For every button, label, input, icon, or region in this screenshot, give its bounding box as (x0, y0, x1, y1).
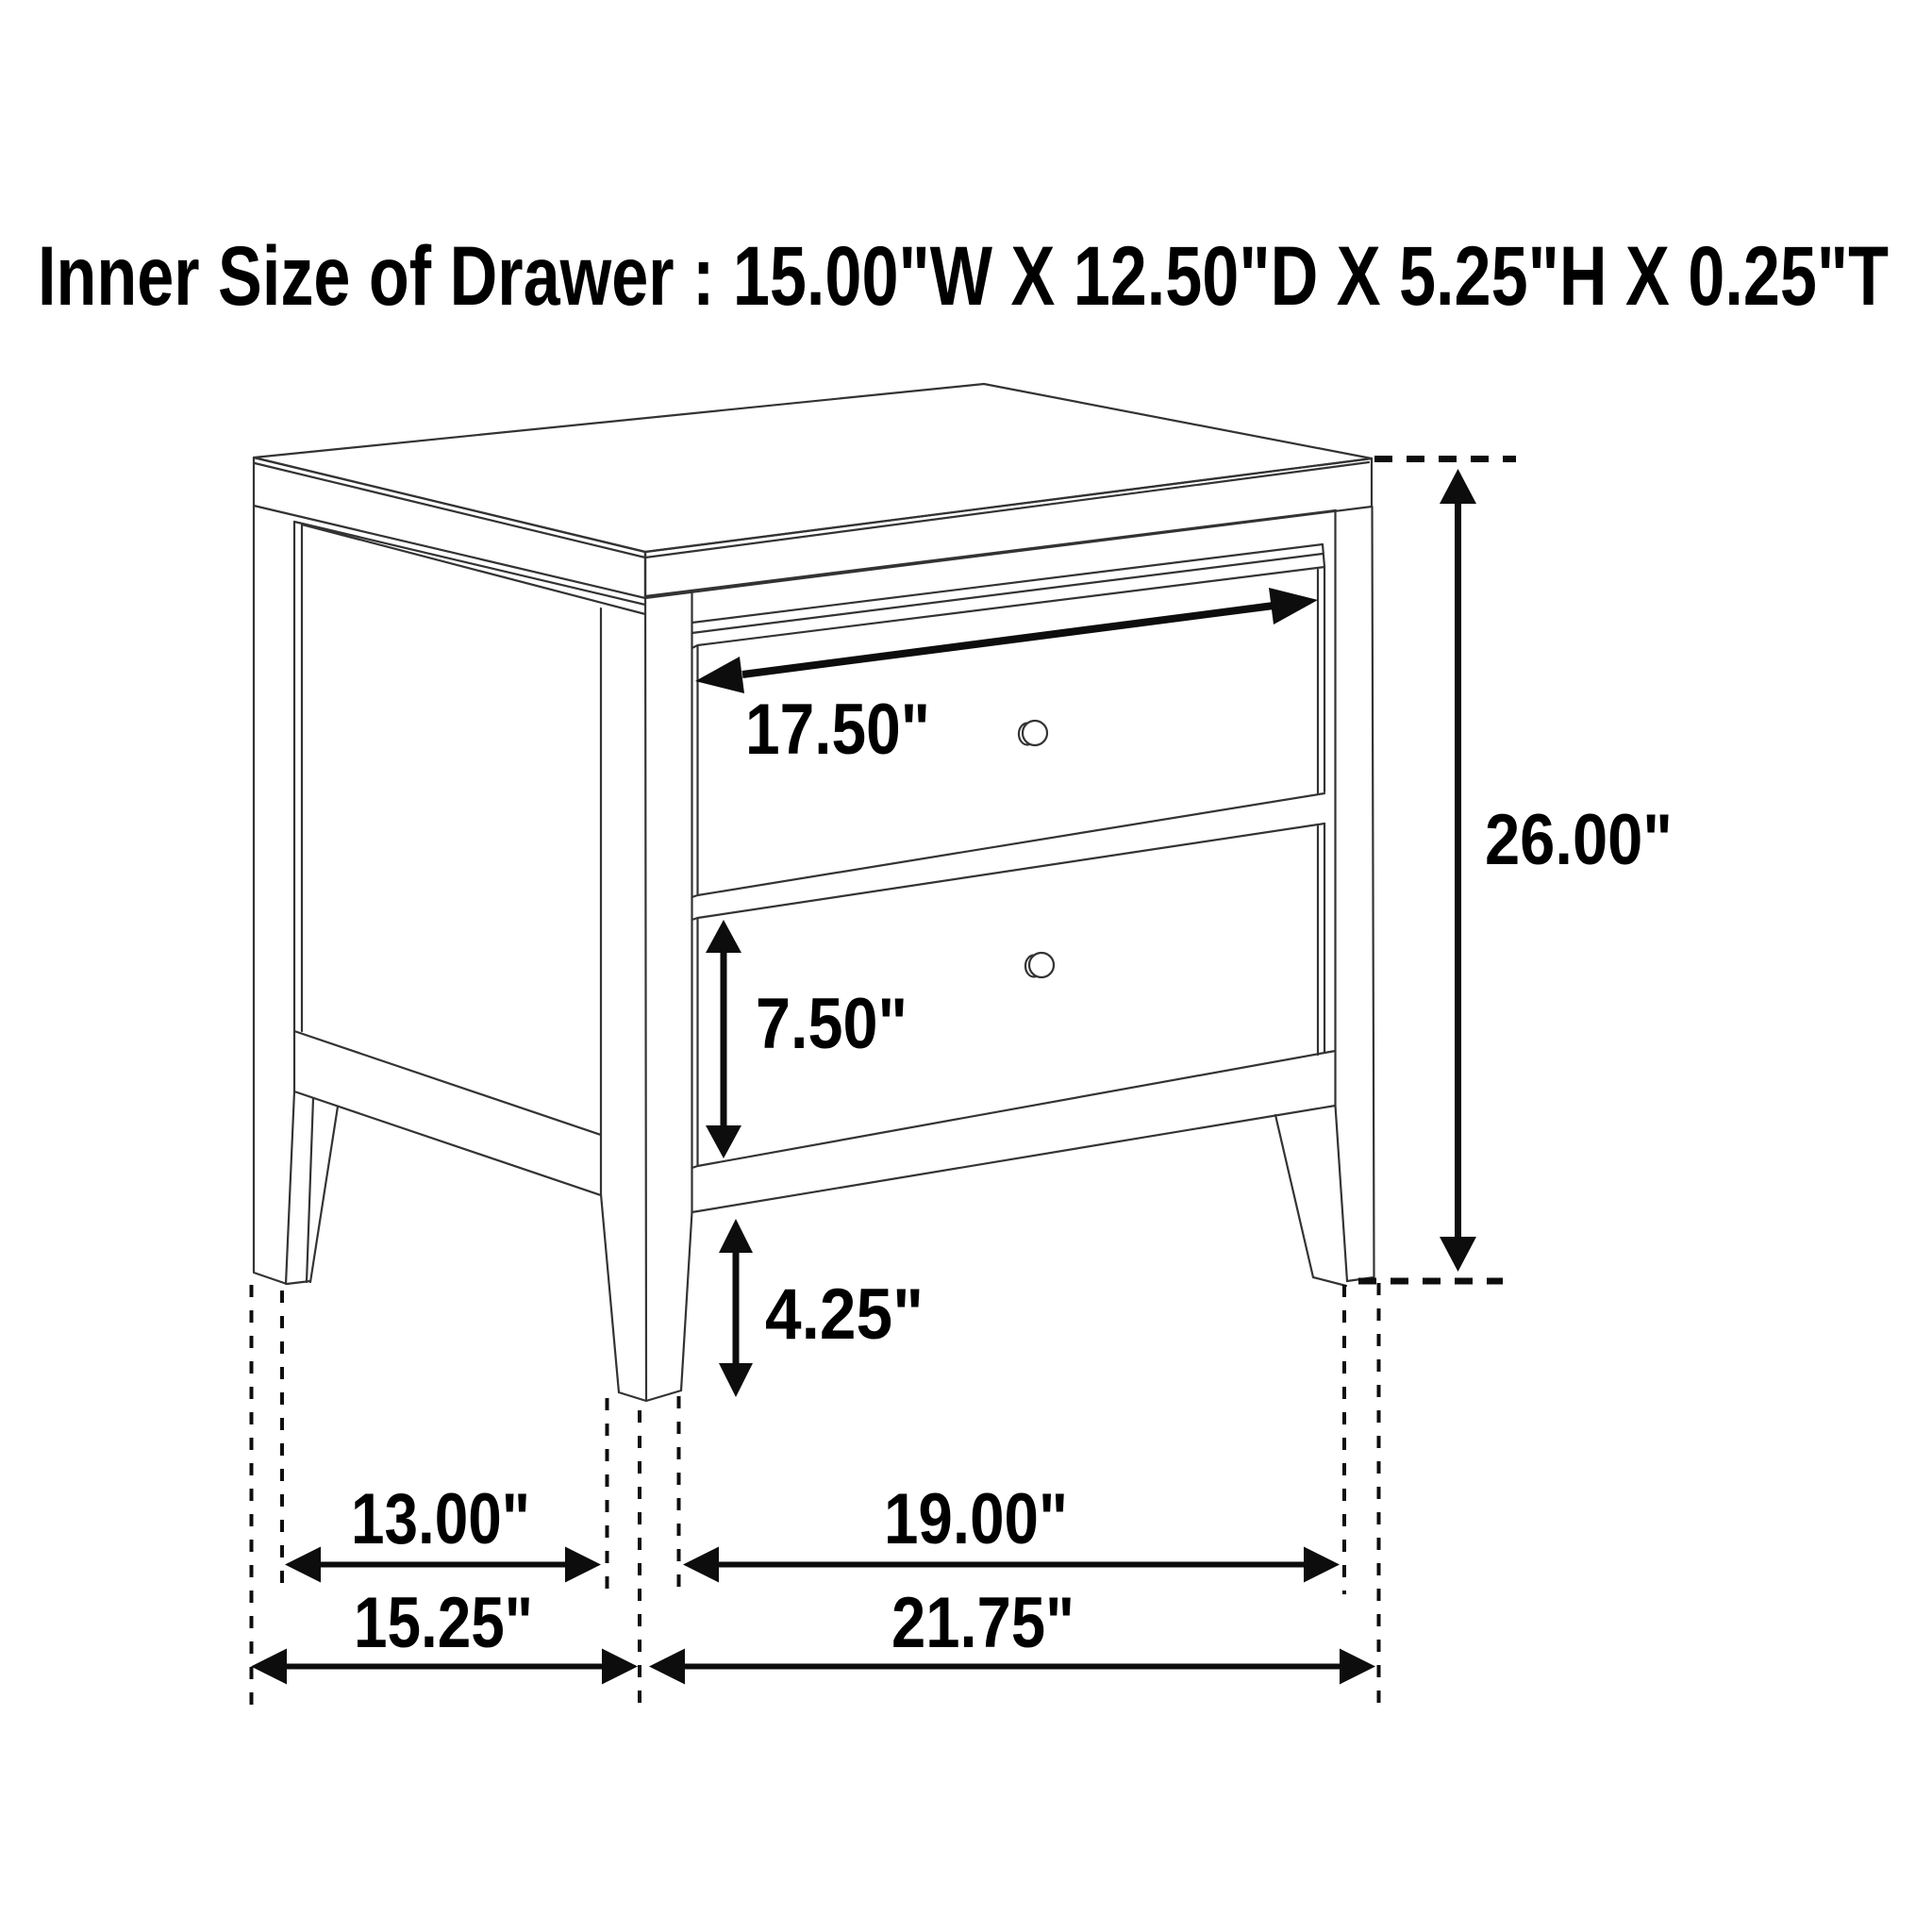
svg-text:15.25": 15.25" (354, 1583, 533, 1663)
svg-text:4.25": 4.25" (765, 1274, 924, 1355)
svg-text:17.50": 17.50" (745, 690, 930, 770)
svg-text:13.00": 13.00" (351, 1479, 530, 1559)
svg-text:21.75": 21.75" (891, 1583, 1074, 1663)
svg-text:26.00": 26.00" (1485, 800, 1673, 880)
svg-text:Inner Size of Drawer : 15.00"W: Inner Size of Drawer : 15.00"W X 12.50"D… (38, 228, 1889, 323)
svg-text:19.00": 19.00" (884, 1479, 1068, 1559)
svg-text:7.50": 7.50" (756, 984, 908, 1064)
